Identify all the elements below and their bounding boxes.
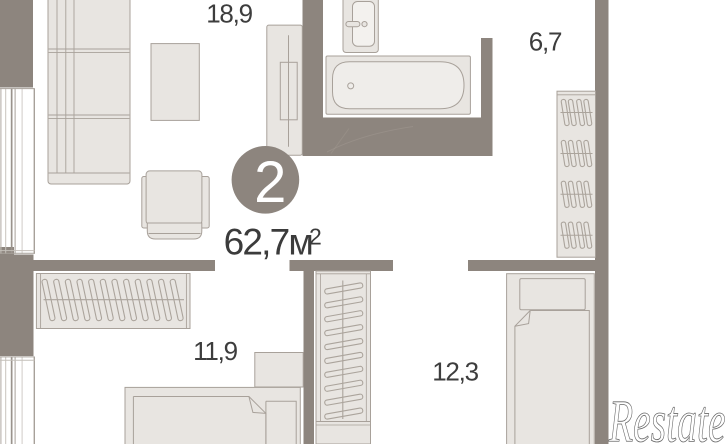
svg-text:11,9: 11,9 (193, 336, 237, 366)
svg-text:6,7: 6,7 (529, 27, 562, 57)
svg-text:2: 2 (309, 224, 322, 250)
svg-text:18,9: 18,9 (206, 0, 252, 28)
svg-text:2: 2 (254, 150, 286, 215)
svg-text:62,7м: 62,7м (224, 221, 312, 262)
svg-text:12,3: 12,3 (432, 356, 478, 386)
svg-text:Restate: Restate (608, 388, 725, 444)
